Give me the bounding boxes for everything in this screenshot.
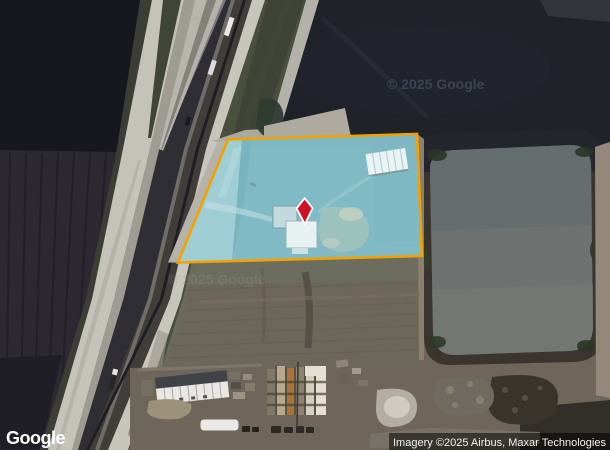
svg-text:© 2025 Google: © 2025 Google bbox=[387, 76, 485, 92]
svg-text:Google: Google bbox=[6, 428, 65, 448]
svg-text:Imagery ©2025 Airbus, Maxar Te: Imagery ©2025 Airbus, Maxar Technologies bbox=[393, 437, 606, 449]
svg-text:© 2025 Google: © 2025 Google bbox=[168, 271, 266, 287]
